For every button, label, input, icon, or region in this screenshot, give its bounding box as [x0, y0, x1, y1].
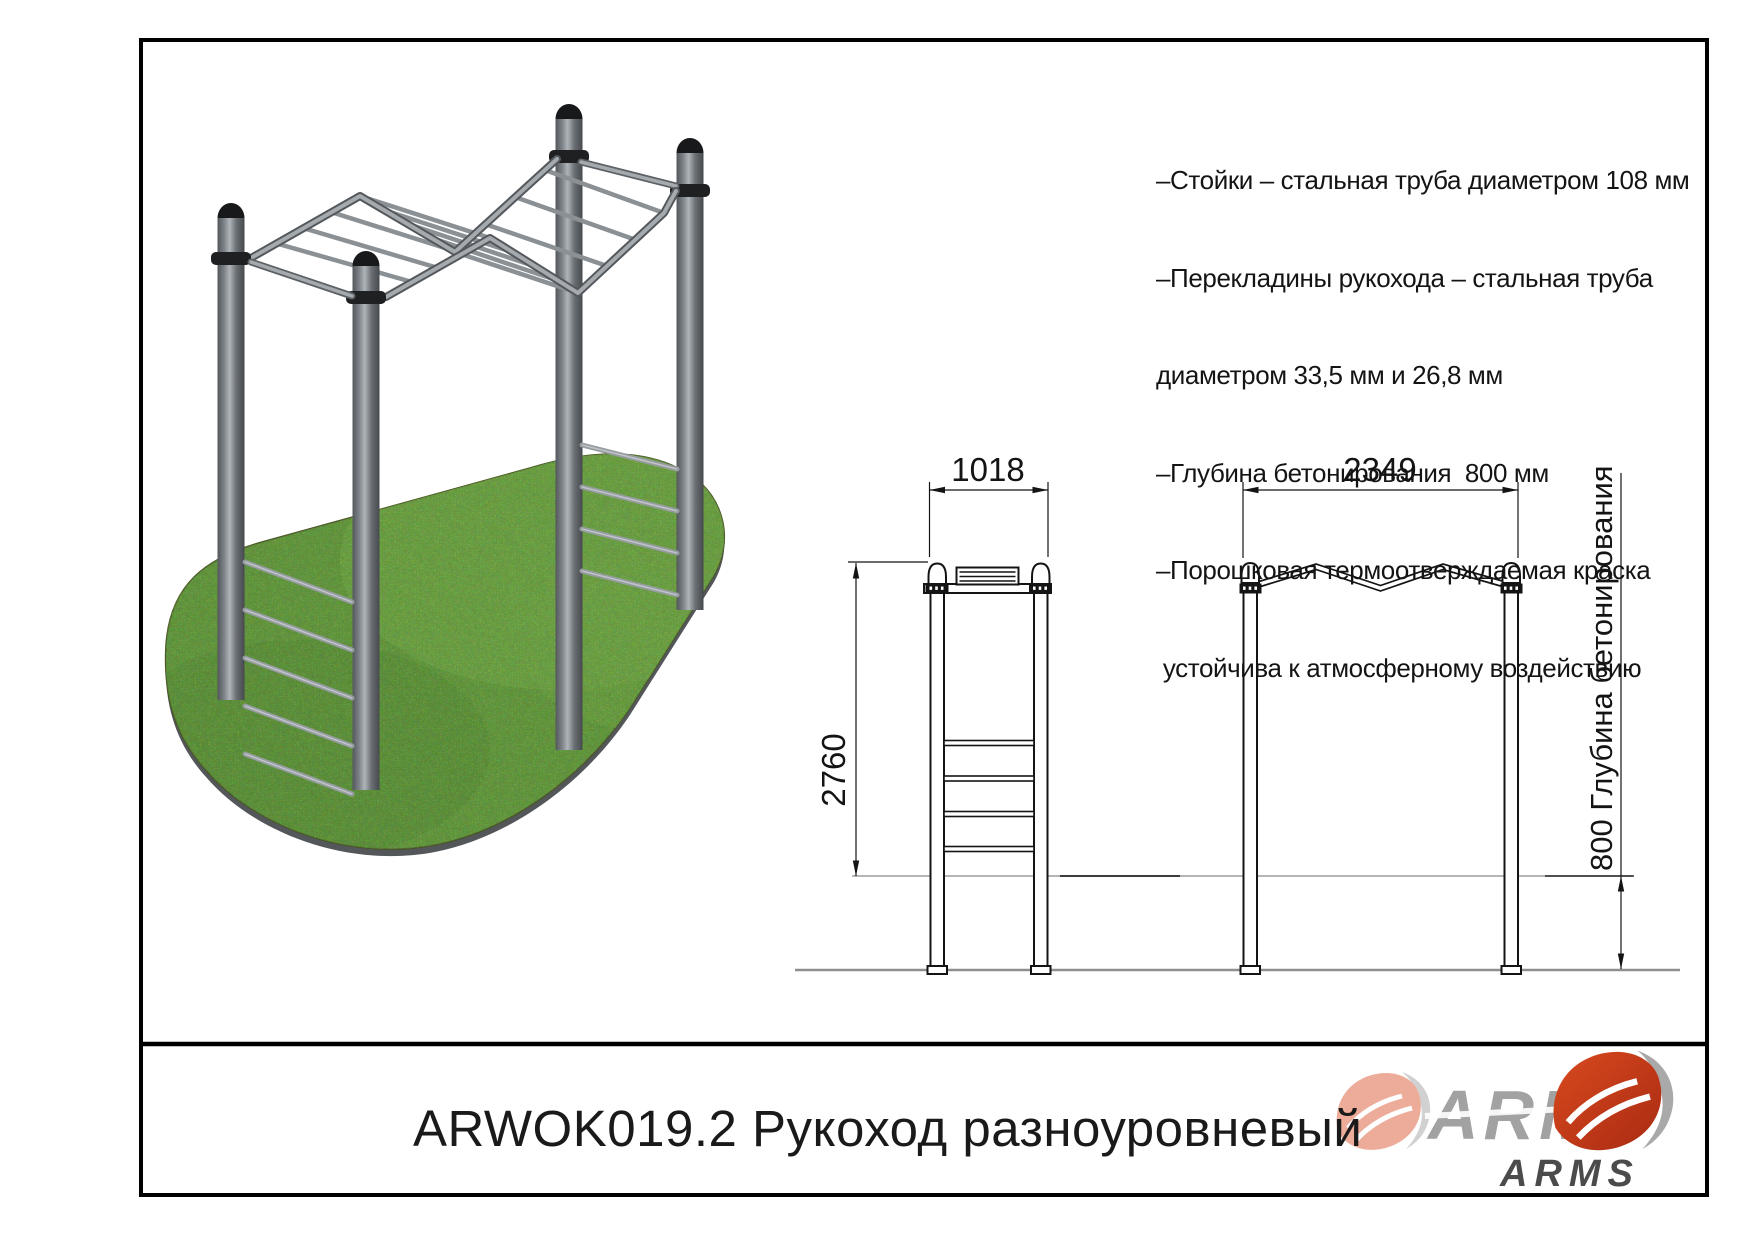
product-title: ARWOK019.2 Рукоход разноуровневый: [413, 1099, 1362, 1158]
spec-line: –Стойки – стальная труба диаметром 108 м…: [1156, 164, 1689, 197]
arms-logo: ARMS ARMS: [1337, 1051, 1674, 1195]
spec-sheet: 1018 2349 2760 800 Глубина бетонирования…: [0, 0, 1754, 1240]
spec-line: устойчива к атмосферному воздействию: [1156, 652, 1689, 685]
dim-height: 2760: [815, 733, 852, 806]
spec-line: –Перекладины рукохода – стальная труба: [1156, 262, 1689, 295]
spec-line: диаметром 33,5 мм и 26,8 мм: [1156, 359, 1689, 392]
spec-line: –Глубина бетонирования 800 мм: [1156, 457, 1689, 490]
dim-front-width: 1018: [951, 451, 1024, 488]
spec-line: –Порошковая термоотверждаемая краска: [1156, 554, 1689, 587]
render-3d: [110, 104, 780, 860]
monkeybar-frame: [251, 159, 676, 297]
front-view: [924, 564, 1052, 975]
arms-wordmark-small: ARMS: [1499, 1153, 1640, 1195]
spec-text-block: –Стойки – стальная труба диаметром 108 м…: [1156, 99, 1689, 749]
arms-emblem-red: [1553, 1051, 1673, 1151]
